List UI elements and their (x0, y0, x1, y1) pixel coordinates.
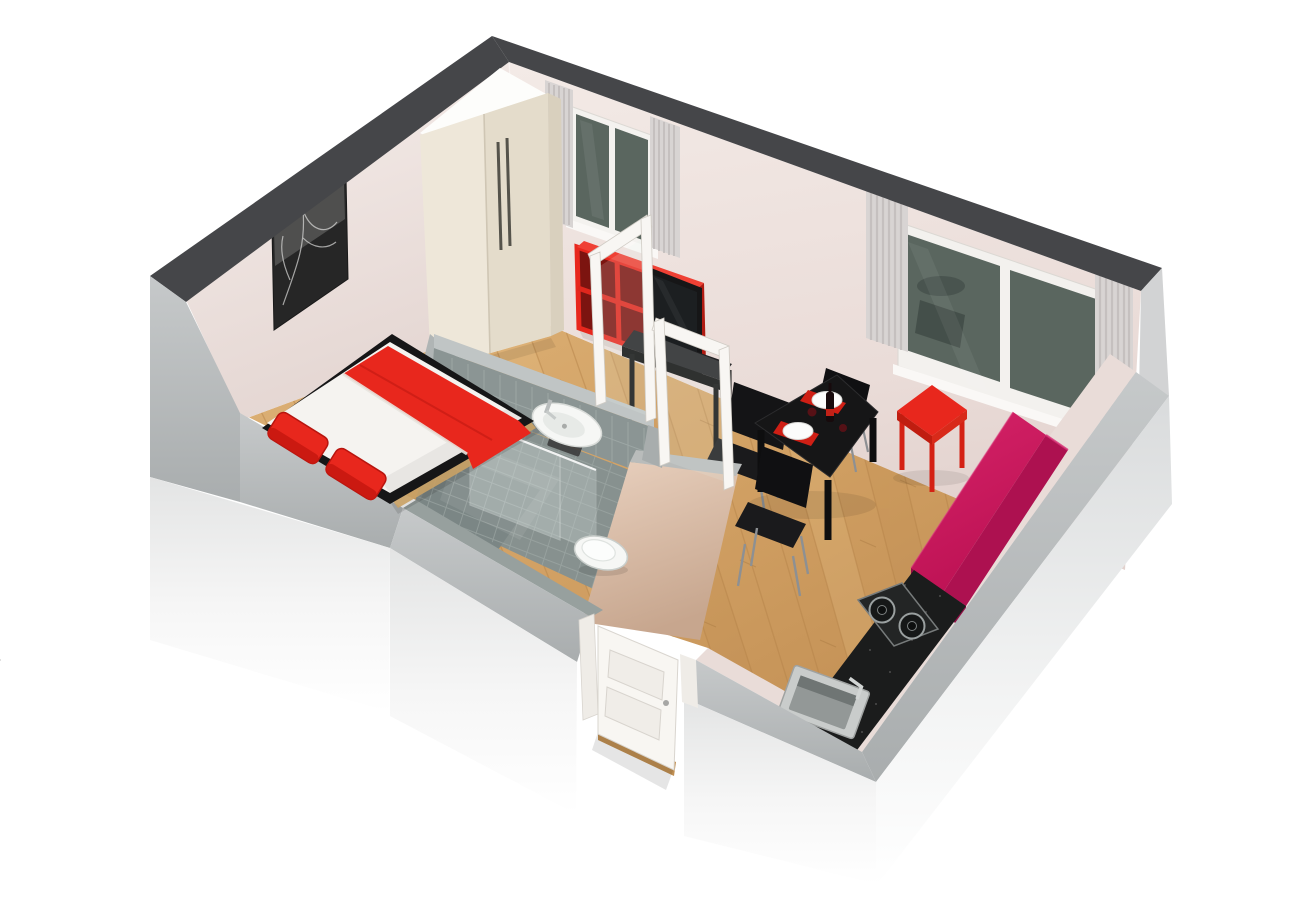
burner-1-center (878, 606, 887, 615)
door-handle (663, 700, 669, 706)
wine-bottle-label (826, 409, 834, 416)
door-jamb-right (680, 654, 698, 708)
frame-b-glass (664, 340, 726, 482)
wine-bottle-body (826, 392, 834, 422)
burner-2-center (908, 622, 917, 631)
floor-plan-render (0, 0, 1300, 900)
wine-glass-2 (839, 424, 847, 432)
floor-plan-stage (0, 0, 1300, 900)
wine-bottle-neck (829, 383, 832, 394)
wardrobe-front-shading (484, 93, 551, 353)
wine-glass-1 (808, 408, 817, 417)
door-jamb-left (579, 614, 598, 720)
plate-near (783, 423, 813, 440)
entry-door (579, 614, 698, 790)
